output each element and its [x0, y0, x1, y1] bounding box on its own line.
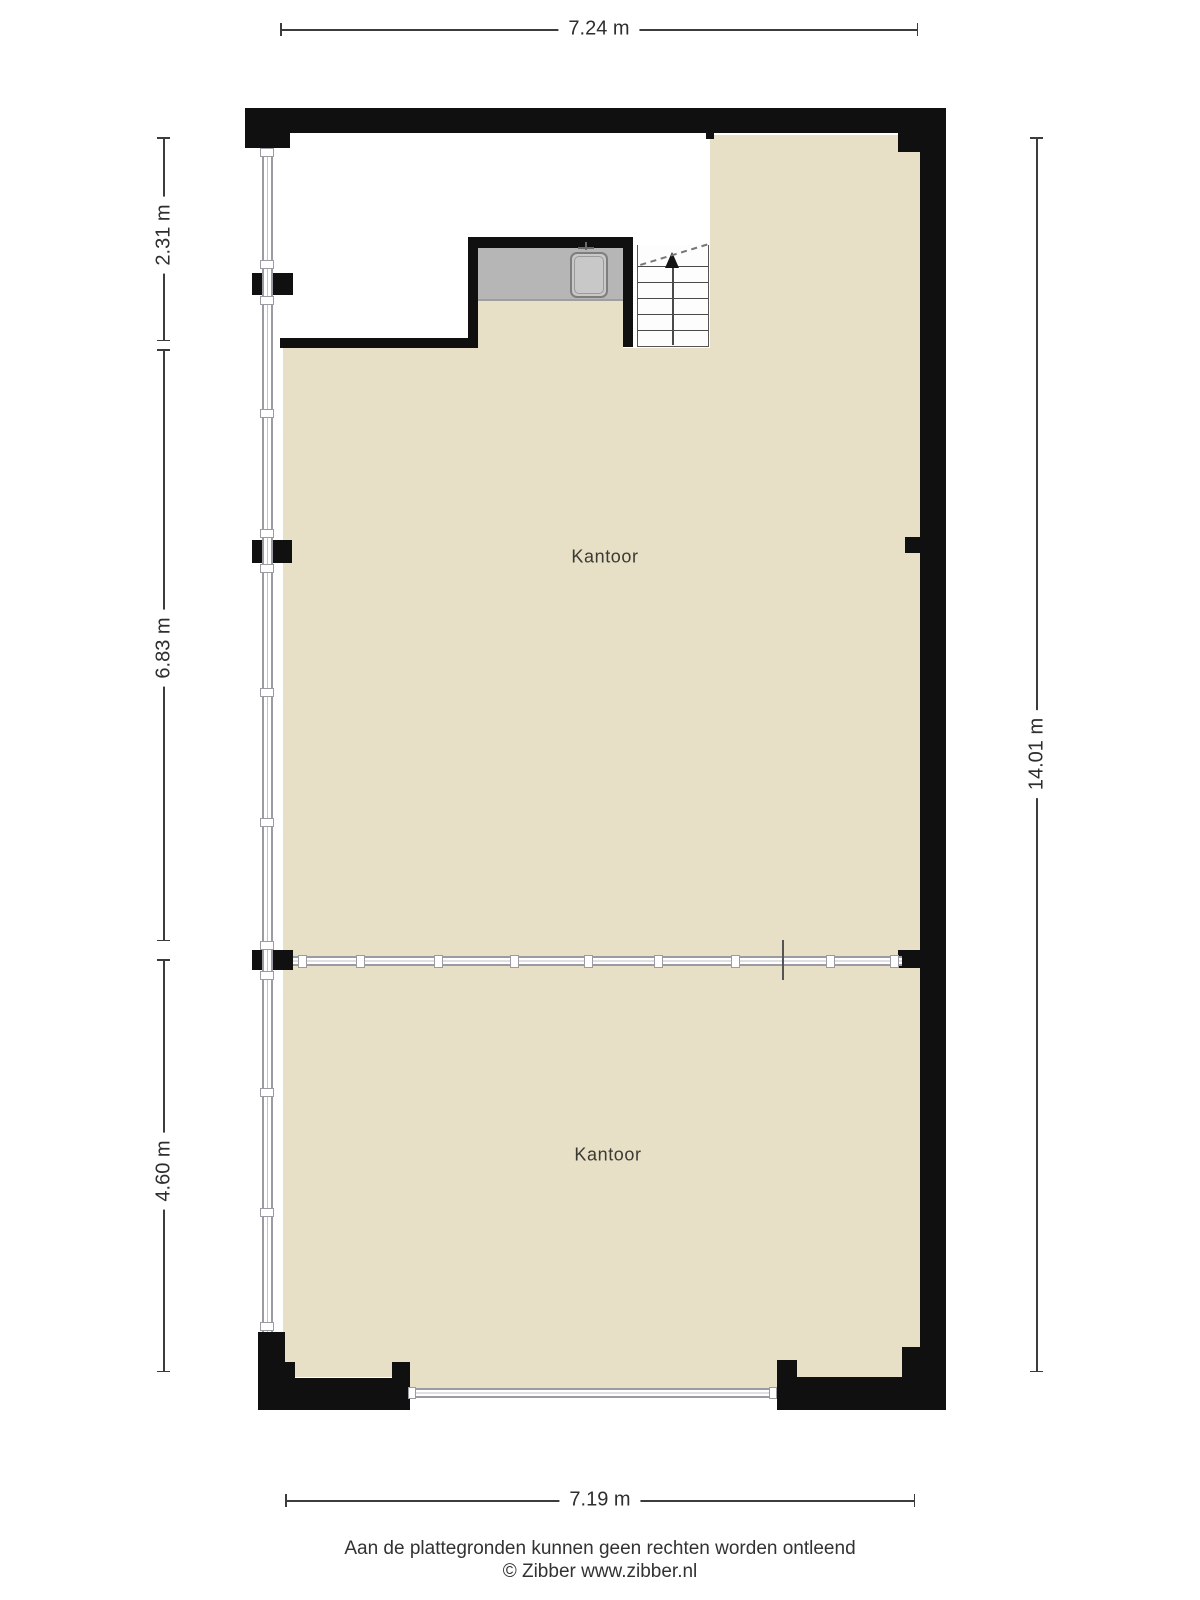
room-floor-lower [283, 965, 920, 1377]
window-mullion [260, 1322, 274, 1331]
kitchen-wall-top [468, 237, 633, 248]
partition-mullion [731, 955, 740, 968]
dimension-right: 14.01 m [1030, 137, 1043, 1372]
window-mullion [260, 260, 274, 269]
dimension-tick [157, 349, 170, 351]
dimension-left-top: 2.31 m [157, 137, 170, 341]
dimension-left-top-value: 2.31 m [153, 196, 176, 273]
window-mullion [260, 1208, 274, 1217]
dimension-tick [285, 1494, 287, 1507]
dimension-top-value: 7.24 m [558, 18, 639, 41]
window-mullion [260, 564, 274, 573]
dimension-tick [914, 1494, 916, 1507]
window-end-cap [408, 1387, 416, 1399]
wall-right [920, 108, 946, 1410]
dimension-tick [1030, 137, 1043, 139]
dimension-tick [280, 23, 282, 36]
dimension-left-bottom-value: 4.60 m [153, 1132, 176, 1209]
dimension-tick [157, 1371, 170, 1373]
dimension-tick [917, 23, 919, 36]
partition-mullion [890, 955, 899, 968]
window-mullion [260, 296, 274, 305]
dimension-top: 7.24 m [280, 23, 918, 36]
window-mullion [260, 818, 274, 827]
window-mullion [260, 688, 274, 697]
faucet-icon [585, 242, 587, 250]
window-left [262, 148, 273, 1332]
wall-segment [392, 1362, 410, 1378]
pier-right-mid [905, 537, 920, 553]
dimension-left-middle: 6.83 m [157, 349, 170, 941]
corner-top-left [245, 108, 290, 148]
wall-top-notch [706, 133, 714, 139]
kitchen-floor-strip [478, 300, 623, 348]
window-mullion [260, 941, 274, 950]
glass-partition [293, 956, 902, 966]
stairs-center-line [672, 267, 674, 345]
partition-mullion [584, 955, 593, 968]
partition-section-marker [782, 940, 784, 980]
wall-void-bottom [280, 338, 478, 348]
room-floor-upper-right [710, 135, 920, 957]
dimension-tick [157, 940, 170, 942]
floorplan-canvas: Kantoor Kantoor 7.24 m 7.19 m 2.31 m 6.8… [0, 0, 1200, 1600]
dimension-tick [157, 959, 170, 961]
window-end-cap [769, 1387, 777, 1399]
footer-disclaimer: Aan de plattegronden kunnen geen rechten… [0, 1538, 1200, 1560]
dimension-bottom-value: 7.19 m [559, 1489, 640, 1512]
room-label-kantoor-upper: Kantoor [571, 547, 638, 568]
window-mullion [260, 148, 274, 157]
dimension-tick [157, 340, 170, 342]
kitchen-wall-right [623, 237, 633, 347]
room-label-kantoor-lower: Kantoor [574, 1145, 641, 1166]
partition-mullion [826, 955, 835, 968]
kitchen-wall-left [468, 248, 478, 347]
dimension-right-value: 14.01 m [1026, 710, 1049, 798]
wall-segment [902, 1347, 920, 1377]
window-mullion [260, 529, 274, 538]
room-floor-upper-left [283, 348, 710, 957]
footer-copyright: © Zibber www.zibber.nl [0, 1561, 1200, 1583]
dimension-tick [157, 137, 170, 139]
wall-segment [777, 1360, 797, 1377]
window-mullion [260, 1088, 274, 1097]
wall-top [245, 108, 946, 133]
dimension-left-middle-value: 6.83 m [153, 609, 176, 686]
sink-icon [570, 252, 608, 298]
partition-mullion [298, 955, 307, 968]
window-bottom [410, 1388, 777, 1398]
wall-bottom-right [777, 1377, 946, 1410]
partition-mullion [654, 955, 663, 968]
partition-mullion [434, 955, 443, 968]
sink-inner-rim [574, 256, 604, 294]
window-mullion [260, 409, 274, 418]
dimension-tick [1030, 1371, 1043, 1373]
dimension-left-bottom: 4.60 m [157, 959, 170, 1372]
wall-segment [283, 1362, 295, 1378]
partition-mullion [510, 955, 519, 968]
partition-mullion [356, 955, 365, 968]
pier-top-right [898, 133, 920, 152]
dimension-bottom: 7.19 m [285, 1494, 915, 1507]
window-mullion [260, 971, 274, 980]
wall-bottom-left [258, 1378, 410, 1410]
